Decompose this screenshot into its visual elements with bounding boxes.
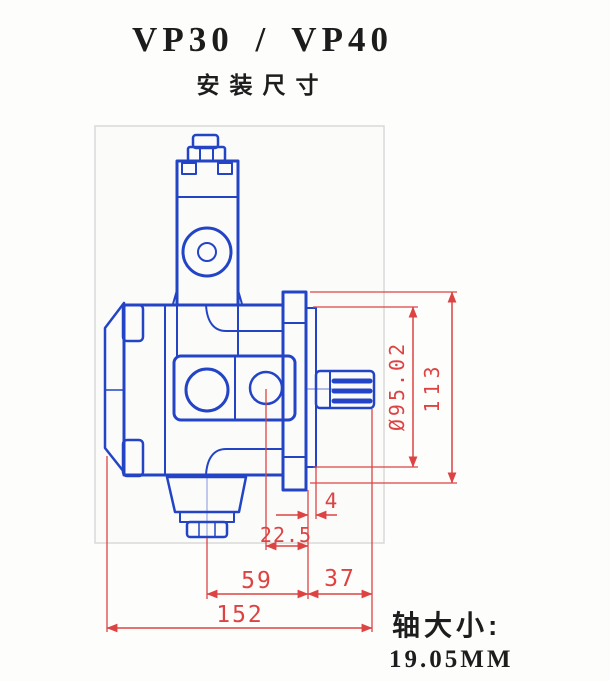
pump-dimension-drawing: Ø95.02 113 4 22.5 59 37 152 [0, 0, 610, 681]
dim-text-overall-length: 152 [216, 602, 264, 628]
shaft-size-value: 19.05MM [389, 646, 513, 674]
dim-text-spigot-depth: 4 [325, 489, 338, 513]
dim-text-pilot-diameter: Ø95.02 [385, 341, 409, 431]
shaft-size-label: 轴大小: [392, 604, 501, 644]
page: VP30 / VP40 安装尺寸 [0, 0, 610, 681]
dim-text-overall-height: 113 [420, 361, 444, 412]
dim-text-outlet-to-face: 22.5 [260, 523, 312, 547]
dim-text-inlet-to-face: 59 [241, 568, 273, 594]
dim-text-face-to-shaft-end: 37 [324, 566, 356, 592]
